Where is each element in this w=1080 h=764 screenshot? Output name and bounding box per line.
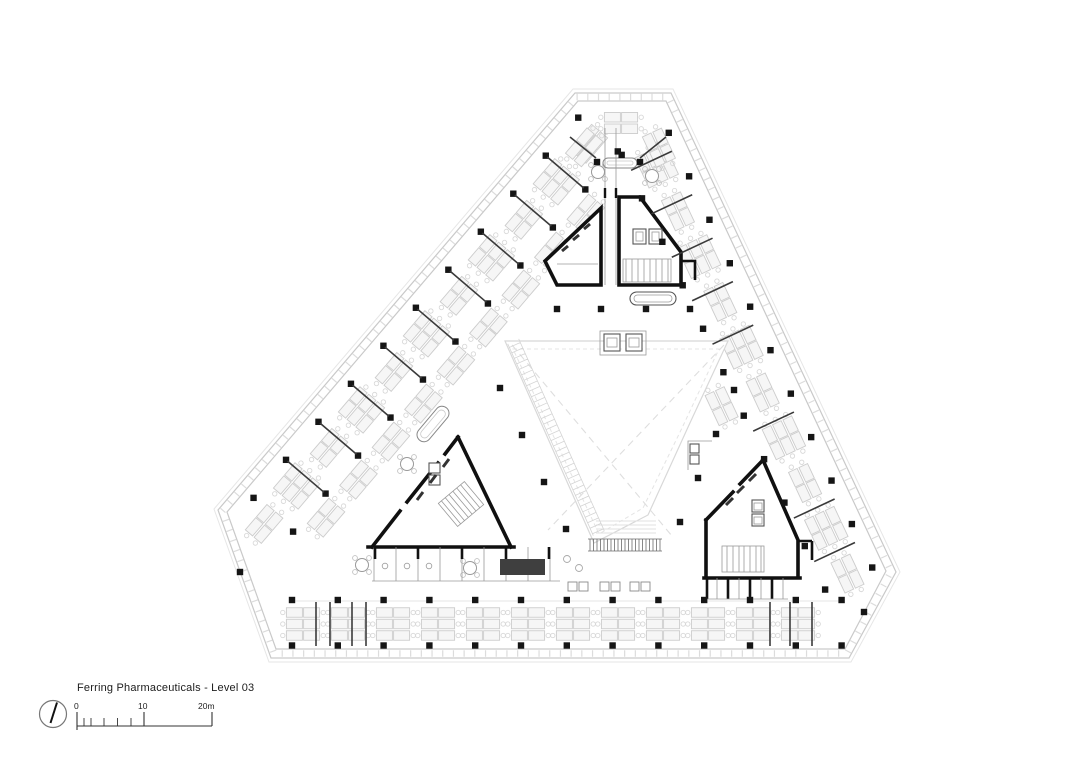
meeting-table xyxy=(630,292,676,305)
column xyxy=(237,569,243,575)
core-southeast xyxy=(688,441,812,599)
column xyxy=(289,597,295,603)
column xyxy=(701,642,707,648)
column xyxy=(335,597,341,603)
desk-cluster xyxy=(433,342,478,390)
column xyxy=(563,526,569,532)
corridor-jambs xyxy=(605,188,616,198)
column xyxy=(838,597,844,603)
desk-cluster xyxy=(828,549,866,598)
column xyxy=(701,597,707,603)
desk-cluster xyxy=(326,608,371,641)
scale-label-start: 0 xyxy=(74,701,79,711)
column xyxy=(609,642,615,648)
column xyxy=(808,434,814,440)
column xyxy=(767,347,773,353)
column xyxy=(639,195,645,201)
lobby-seat xyxy=(568,582,577,591)
lobby-seat xyxy=(600,582,609,591)
atrium-skylight-right xyxy=(626,334,642,351)
scale-bar: 0 10 20m xyxy=(74,701,215,730)
column xyxy=(335,642,341,648)
scale-minor-ticks xyxy=(84,718,131,726)
desk-cluster xyxy=(596,608,641,641)
column xyxy=(741,412,747,418)
desk-cluster xyxy=(466,304,511,352)
column xyxy=(380,642,386,648)
column xyxy=(659,239,665,245)
column xyxy=(655,597,661,603)
round-table xyxy=(353,556,372,575)
column xyxy=(686,173,692,179)
round-table xyxy=(461,559,480,578)
column xyxy=(598,306,604,312)
desk-cluster xyxy=(506,608,551,641)
column xyxy=(643,306,649,312)
desk-cluster xyxy=(242,500,287,548)
column xyxy=(687,306,693,312)
column xyxy=(700,326,706,332)
kitchenette-block xyxy=(500,559,545,575)
north-arrow-icon xyxy=(40,701,67,728)
scale-label-end: 20m xyxy=(198,701,215,711)
column xyxy=(761,456,767,462)
column xyxy=(677,519,683,525)
stub-rooms xyxy=(706,578,788,599)
column xyxy=(250,495,256,501)
column xyxy=(666,130,672,136)
desk-cluster xyxy=(744,368,782,417)
desk-cluster xyxy=(776,608,821,641)
column xyxy=(564,597,570,603)
core-southwest xyxy=(368,437,560,581)
desk-cluster xyxy=(551,608,596,641)
column xyxy=(822,586,828,592)
elevator xyxy=(429,463,440,473)
desk-cluster xyxy=(498,266,543,314)
column xyxy=(713,431,719,437)
column xyxy=(793,597,799,603)
column xyxy=(290,528,296,534)
vestibule-box xyxy=(690,444,699,453)
column xyxy=(747,304,753,310)
column xyxy=(781,499,787,505)
column xyxy=(731,387,737,393)
column xyxy=(747,597,753,603)
column xyxy=(609,597,615,603)
column xyxy=(861,609,867,615)
column xyxy=(289,642,295,648)
column xyxy=(802,543,808,549)
column xyxy=(594,159,600,165)
lobby-seat xyxy=(641,582,650,591)
column xyxy=(472,597,478,603)
scale-major-ticks xyxy=(77,712,212,730)
desk-cluster xyxy=(336,456,381,504)
column xyxy=(554,306,560,312)
scale-label-mid: 10 xyxy=(138,701,148,711)
desk-cluster xyxy=(416,608,461,641)
atrium-void-outline xyxy=(505,341,728,543)
oval-table xyxy=(603,158,637,168)
column xyxy=(518,642,524,648)
column xyxy=(519,432,525,438)
column xyxy=(426,642,432,648)
desk-cluster xyxy=(786,458,824,507)
column xyxy=(618,152,624,158)
column xyxy=(828,477,834,483)
column xyxy=(838,642,844,648)
desk-cluster xyxy=(281,608,326,641)
fixture xyxy=(426,563,432,569)
fixture xyxy=(404,563,410,569)
plan-title: Ferring Pharmaceuticals - Level 03 xyxy=(77,682,254,694)
column xyxy=(706,217,712,223)
elevator xyxy=(633,229,646,244)
lobby-seat xyxy=(630,582,639,591)
atrium-skylight-left xyxy=(604,334,620,351)
column xyxy=(869,564,875,570)
lobby-seat xyxy=(611,582,620,591)
desk-cluster xyxy=(731,608,776,641)
desk-cluster xyxy=(641,608,686,641)
column xyxy=(472,642,478,648)
column xyxy=(575,114,581,120)
round-table xyxy=(398,455,417,474)
column xyxy=(497,385,503,391)
desk-cluster xyxy=(371,608,416,641)
lobby-table xyxy=(564,556,571,563)
column xyxy=(793,642,799,648)
column xyxy=(727,260,733,266)
column xyxy=(564,642,570,648)
column xyxy=(518,597,524,603)
title-block: Ferring Pharmaceuticals - Level 03 0 10 … xyxy=(40,682,255,730)
column xyxy=(655,642,661,648)
column xyxy=(680,282,686,288)
column xyxy=(747,642,753,648)
vestibule-box xyxy=(690,455,699,464)
desk-cluster xyxy=(686,608,731,641)
column xyxy=(720,369,726,375)
column xyxy=(380,597,386,603)
drawing-sheet: Ferring Pharmaceuticals - Level 03 0 10 … xyxy=(0,0,1080,764)
lobby-table xyxy=(576,565,583,572)
lobby-seat xyxy=(579,582,588,591)
column xyxy=(849,521,855,527)
column xyxy=(541,479,547,485)
column xyxy=(695,475,701,481)
desk-cluster xyxy=(701,277,739,326)
floor-plan-svg: Ferring Pharmaceuticals - Level 03 0 10 … xyxy=(0,0,1080,764)
fixture xyxy=(382,563,388,569)
tip-corridor xyxy=(605,128,616,285)
column xyxy=(426,597,432,603)
desk-cluster xyxy=(304,494,349,542)
desk-cluster xyxy=(461,608,506,641)
column xyxy=(788,390,794,396)
